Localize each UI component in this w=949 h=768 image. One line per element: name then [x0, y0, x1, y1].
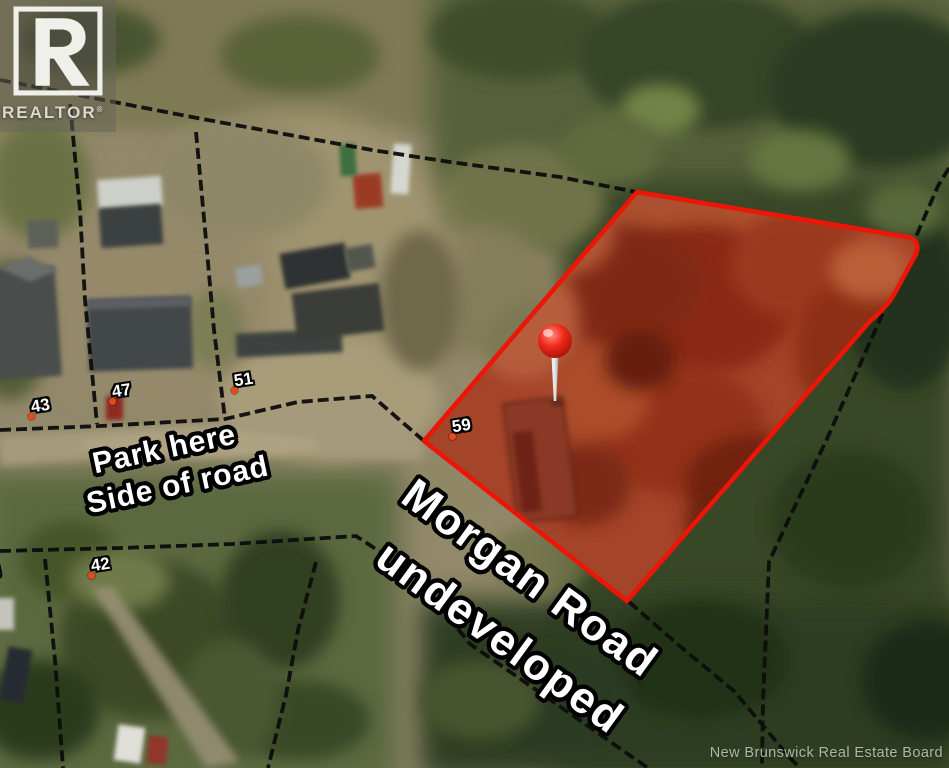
- house-number-marker-51: 51: [234, 370, 253, 390]
- realtor-logo: REALTOR®: [0, 0, 116, 132]
- board-watermark: New Brunswick Real Estate Board: [710, 745, 943, 761]
- house-47-roof-dark: [99, 204, 164, 248]
- pin-head: [538, 324, 572, 358]
- house-number-marker-43: 43: [31, 396, 50, 416]
- house-number-marker-59: 59: [452, 416, 471, 436]
- house-number-marker-47: 47: [112, 381, 131, 401]
- white-truck: [390, 143, 411, 194]
- red-car: [147, 735, 169, 765]
- registered-trademark-symbol: ®: [97, 105, 103, 114]
- red-truck: [353, 173, 384, 209]
- aerial-map: REALTOR® 43 47 51 59 42 8 Park here Side…: [0, 0, 949, 768]
- marker-dot: [88, 572, 95, 579]
- marker-dot: [449, 433, 456, 440]
- white-car: [114, 724, 146, 763]
- house-number-marker-42: 42: [91, 555, 110, 575]
- realtor-logo-text: REALTOR®: [2, 103, 116, 123]
- marker-dot: [109, 398, 116, 405]
- shed: [27, 219, 58, 249]
- aerial-photo-canvas: [0, 0, 949, 768]
- marker-dot: [28, 413, 35, 420]
- realtor-r-icon: [13, 6, 103, 96]
- marker-dot: [231, 387, 238, 394]
- house-43-roof: [0, 266, 62, 380]
